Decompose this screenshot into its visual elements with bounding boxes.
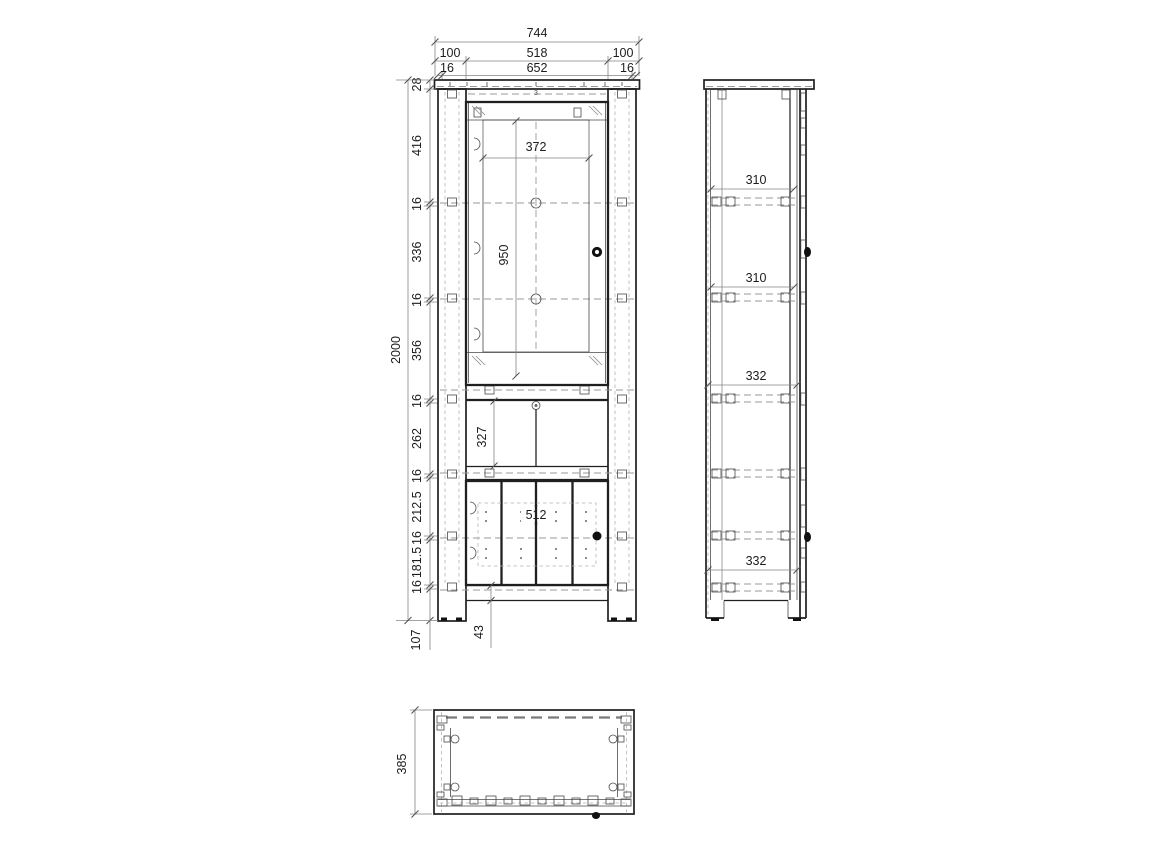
dim-front-width-total: 744	[527, 26, 548, 40]
dim-front-row2-right: 100	[613, 46, 634, 60]
dim-front-chain-28: 28	[410, 78, 424, 92]
dim-front-chain-356: 356	[410, 340, 424, 361]
corner-fittings	[437, 716, 631, 806]
dim-front-row3-left: 16	[440, 61, 454, 75]
side-knob-lower	[804, 532, 811, 542]
dim-front-chain-16b: 16	[410, 293, 424, 307]
dim-front-height-total: 2000	[389, 336, 403, 364]
side-view: 310 310 332 332	[704, 80, 814, 621]
dim-front-chain-262: 262	[410, 428, 424, 449]
dim-side-shelf-332a: 332	[746, 369, 767, 383]
dim-front-chain-16e: 16	[410, 531, 424, 545]
dim-front-leg-height: 107	[409, 630, 423, 651]
dim-glass-height: 950	[497, 245, 511, 266]
drawing-page: 3	[0, 0, 1157, 867]
top-outline	[434, 710, 634, 814]
dim-side-shelf-310a: 310	[746, 173, 767, 187]
hinge-arcs	[474, 138, 480, 340]
front-rail-fittings	[452, 796, 614, 805]
hinge-arcs	[470, 502, 476, 559]
dim-front-row3-right: 16	[620, 61, 634, 75]
dim-front-row2-mid: 518	[527, 46, 548, 60]
dim-front-chain-212-5: 212.5	[410, 491, 424, 522]
cabinet-technical-drawing: 3	[0, 0, 1157, 867]
front-left-stile	[438, 89, 466, 621]
fitting-mark-label: 3	[534, 90, 538, 97]
door-edge-fittings	[801, 93, 806, 592]
dim-glass-width: 372	[526, 140, 547, 154]
door-knob	[593, 532, 602, 541]
side-shelf-hidden-lines	[711, 197, 797, 592]
front-right-stile	[608, 89, 636, 621]
dim-front-chain-336: 336	[410, 242, 424, 263]
top-view: 385	[395, 707, 634, 820]
dim-front-chain-16c: 16	[410, 394, 424, 408]
dim-top-depth: 385	[395, 754, 409, 775]
dim-front-chain-16f: 16	[410, 580, 424, 594]
door-knob	[593, 248, 600, 255]
dim-front-chain-181-5: 181.5	[410, 547, 424, 578]
front-top-cap	[435, 80, 640, 89]
dim-open-compartment-height: 327	[475, 427, 489, 448]
dim-front-row3-mid: 652	[527, 61, 548, 75]
side-knob-upper	[804, 247, 811, 257]
dim-front-chain-416: 416	[410, 135, 424, 156]
dim-side-shelf-310b: 310	[746, 271, 767, 285]
dim-front-chain-16d: 16	[410, 469, 424, 483]
dim-side-shelf-332b: 332	[746, 554, 767, 568]
top-view-knob	[592, 812, 600, 819]
front-bottom-door	[466, 481, 608, 585]
front-view: 3	[435, 80, 640, 621]
side-dimensions: 310 310 332 332	[705, 173, 801, 574]
dim-plinth-height: 43	[472, 625, 486, 639]
side-top-cap	[704, 80, 814, 89]
dim-front-row2-left: 100	[440, 46, 461, 60]
top-dimensions: 385	[395, 707, 432, 818]
dim-front-chain-16a: 16	[410, 197, 424, 211]
